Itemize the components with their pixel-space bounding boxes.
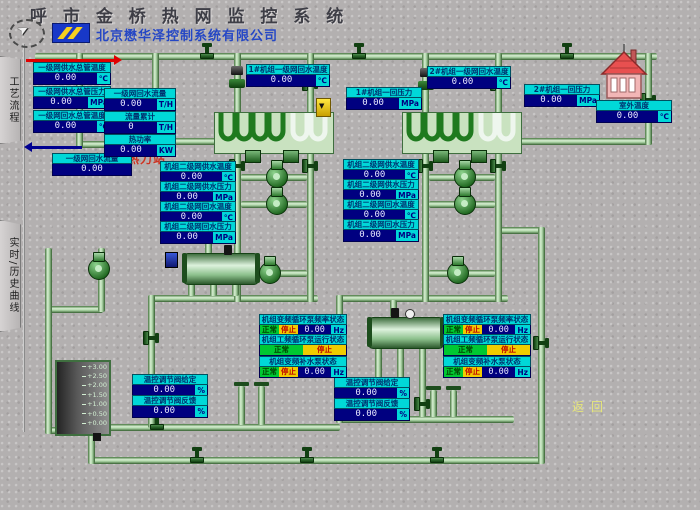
riser-stub-pipe bbox=[238, 386, 245, 425]
level-tick: +3.00 bbox=[57, 362, 109, 371]
return-flow-arrow-icon bbox=[32, 146, 82, 149]
gauge-value: 0.00 bbox=[347, 98, 399, 109]
status-unit: Hz bbox=[515, 367, 530, 377]
gauge-unit: MPa bbox=[399, 98, 421, 109]
status-label: 机组变频循环泵频率状态 bbox=[443, 314, 531, 325]
gauge-unit1-primary-return-temp: 1#机组一级网回水温度 0.00℃ bbox=[246, 64, 330, 87]
gauge-value: 0.00 bbox=[597, 111, 658, 122]
gauge-label: 机组二级网回水温度 bbox=[343, 199, 419, 210]
pipe-cap bbox=[254, 382, 269, 386]
water-collector-tank-unit1 bbox=[183, 253, 259, 285]
level-tick: +0.00 bbox=[57, 418, 109, 427]
pipe-segment bbox=[88, 457, 543, 464]
pipe-segment bbox=[518, 138, 652, 145]
gauge-value: 0.00 bbox=[335, 409, 397, 420]
riser-stub-pipe bbox=[258, 386, 265, 425]
hand-valve-icon bbox=[414, 397, 430, 411]
drain-valve-icon bbox=[93, 433, 101, 441]
circulation-pump-unit1-b[interactable] bbox=[266, 193, 288, 215]
house-icon bbox=[600, 44, 648, 106]
circulation-pump-unit1-a[interactable] bbox=[266, 166, 288, 188]
hand-valve-icon bbox=[490, 159, 506, 173]
gauge-value: 0.00 bbox=[105, 99, 157, 110]
pressure-gauge-icon bbox=[405, 309, 415, 319]
actuator-valve-icon[interactable] bbox=[316, 98, 331, 117]
gauge-unit: ℃ bbox=[497, 77, 510, 88]
gauge-label: 机组二级网回水压力 bbox=[160, 221, 236, 232]
cursor-arrow-icon: ➤ bbox=[15, 21, 32, 39]
gauge-unit1-valve-setpoint: 温控调节阀给定 0.00% bbox=[132, 374, 208, 397]
gauge-unit: % bbox=[195, 406, 207, 417]
circulation-pump-unit2-a[interactable] bbox=[454, 166, 476, 188]
tank-vent-icon bbox=[224, 245, 232, 255]
hand-valve-icon bbox=[302, 159, 318, 173]
makeup-water-pump-unit1[interactable] bbox=[259, 262, 281, 284]
status-label: 机组变频补水泵状态 bbox=[443, 356, 531, 367]
pipe-cap bbox=[426, 386, 441, 390]
gauge-label: 一级网供水总管压力 bbox=[33, 86, 111, 97]
gauge-label: 机组二级网回水温度 bbox=[160, 201, 236, 212]
tab-process-flow[interactable]: 工艺流程 bbox=[0, 56, 21, 144]
level-tick: +0.50 bbox=[57, 409, 109, 418]
flow-meter-block: 一级网回水流量 0.00T/H 流量累计 0T/H 热功率 0.00KW bbox=[104, 88, 176, 157]
heat-exchanger-unit1 bbox=[214, 112, 334, 154]
hx-junction-box bbox=[471, 150, 487, 163]
gauge-label: 机组二级网供水温度 bbox=[160, 161, 236, 172]
riser-stub-pipe bbox=[430, 390, 437, 417]
gauge-unit: MPa bbox=[396, 230, 418, 241]
gauge-outdoor-temp: 室外温度 0.00℃ bbox=[596, 100, 672, 123]
gauge-unit2-sec-return-pressure: 机组二级网回水压力 0.00MPa bbox=[343, 219, 419, 242]
gauge-unit: KW bbox=[157, 145, 175, 156]
gauge-unit: T/H bbox=[157, 122, 175, 133]
level-tick: +1.00 bbox=[57, 400, 109, 409]
gauge-label: 一级网供水总管温度 bbox=[33, 62, 111, 73]
status-label: 机组变频循环泵频率状态 bbox=[259, 314, 347, 325]
gauge-value: 0.00 bbox=[247, 75, 316, 86]
gauge-value: 0.00 bbox=[428, 77, 497, 88]
makeup-water-pump-unit2[interactable] bbox=[447, 262, 469, 284]
gauge-label: 流量累计 bbox=[104, 111, 176, 122]
gauge-unit: ℃ bbox=[97, 73, 110, 84]
pipe-segment bbox=[100, 424, 340, 431]
gauge-unit2-primary-return-temp: 2#机组一级网回水温度 0.00℃ bbox=[427, 66, 511, 89]
gauge-unit: % bbox=[397, 409, 409, 420]
hx-junction-box bbox=[245, 150, 261, 163]
gauge-value: 0.00 bbox=[133, 406, 195, 417]
gauge-value: 0.00 bbox=[525, 95, 577, 106]
makeup-water-pump-left[interactable] bbox=[88, 258, 110, 280]
hand-valve-icon bbox=[143, 331, 159, 345]
pipe-cap bbox=[234, 382, 249, 386]
level-tick: +2.50 bbox=[57, 371, 109, 380]
gauge-value: 0.00 bbox=[161, 232, 213, 243]
hx-junction-box bbox=[433, 150, 449, 163]
pump-motor-icon bbox=[165, 252, 178, 268]
heat-exchanger-unit2 bbox=[402, 112, 522, 154]
status-unit1-pf-circ-pump: 机组工频循环泵运行状态 正常 停止 bbox=[259, 334, 347, 356]
status-unit2-vfd-circ-pump: 机组变频循环泵频率状态 正常 停止 0.00 Hz bbox=[443, 314, 531, 336]
status-stop-badge: 停止 bbox=[279, 367, 298, 377]
gauge-label: 热功率 bbox=[104, 134, 176, 145]
gauge-label: 2#机组一回压力 bbox=[524, 84, 600, 95]
status-unit: Hz bbox=[331, 367, 346, 377]
hx-junction-box bbox=[283, 150, 299, 163]
gauge-label: 1#机组一回压力 bbox=[346, 87, 422, 98]
status-stop-badge: 停止 bbox=[463, 367, 482, 377]
circulation-pump-unit2-b[interactable] bbox=[454, 193, 476, 215]
company-name: 北京懋华泽控制系统有限公司 bbox=[96, 25, 278, 44]
clock-icon: ➤ bbox=[9, 19, 45, 48]
gauge-label: 温控调节阀给定 bbox=[334, 377, 410, 388]
tab-realtime-history-curves[interactable]: 实时/历史曲线 bbox=[0, 220, 21, 332]
gauge-unit2-primary-pressure: 2#机组一回压力 0.00MPa bbox=[524, 84, 600, 107]
level-tick: +1.50 bbox=[57, 390, 109, 399]
gauge-primary-supply-temp: 一级网供水总管温度 0.00℃ bbox=[33, 62, 111, 85]
gauge-label: 机组二级网供水温度 bbox=[343, 159, 419, 170]
tank-vent-icon bbox=[391, 308, 399, 318]
gauge-unit: ℃ bbox=[658, 111, 671, 122]
control-valve-unit1[interactable] bbox=[229, 66, 245, 90]
hand-valve-icon bbox=[200, 43, 214, 59]
hand-valve-icon bbox=[300, 447, 314, 463]
gauge-label: 1#机组一级网回水温度 bbox=[246, 64, 330, 75]
status-unit1-vfd-circ-pump: 机组变频循环泵频率状态 正常 停止 0.00 Hz bbox=[259, 314, 347, 336]
gauge-label: 一级网回水总管温度 bbox=[33, 110, 111, 121]
company-logo-icon bbox=[52, 23, 90, 43]
gauge-label: 机组二级网供水压力 bbox=[160, 181, 236, 192]
status-stop-badge: 停止 bbox=[487, 345, 530, 355]
pipe-segment bbox=[148, 295, 318, 302]
gauge-value: 0.00 bbox=[53, 164, 131, 175]
hand-valve-icon bbox=[352, 43, 366, 59]
status-normal-badge: 正常 bbox=[260, 345, 303, 355]
return-button[interactable]: 返回 bbox=[572, 398, 610, 415]
level-tick: +2.00 bbox=[57, 381, 109, 390]
scada-screen: 呼 市 金 桥 热 网 监 控 系 统 ➤ 北京懋华泽控制系统有限公司 工艺流程… bbox=[0, 0, 700, 525]
gauge-unit2-valve-feedback: 温控调节阀反馈 0.00% bbox=[334, 398, 410, 421]
gauge-unit: MPa bbox=[213, 232, 235, 243]
gauge-unit: ℃ bbox=[316, 75, 329, 86]
pipe-segment bbox=[45, 248, 52, 434]
gauge-label: 温控调节阀反馈 bbox=[334, 398, 410, 409]
status-label: 机组工频循环泵运行状态 bbox=[443, 334, 531, 345]
gauge-value: 0.00 bbox=[105, 145, 157, 156]
water-collector-tank-unit2 bbox=[368, 317, 444, 349]
status-normal-badge: 正常 bbox=[260, 367, 279, 377]
gauge-primary-supply-pressure: 一级网供水总管压力 0.00MPa bbox=[33, 86, 111, 109]
pipe-segment bbox=[45, 306, 103, 313]
status-value: 0.00 bbox=[482, 367, 515, 377]
gauge-unit1-primary-pressure: 1#机组一回压力 0.00MPa bbox=[346, 87, 422, 110]
gauge-label: 温控调节阀反馈 bbox=[132, 395, 208, 406]
coil-icon bbox=[215, 113, 333, 153]
sidebar-divider bbox=[23, 44, 24, 432]
status-normal-badge: 正常 bbox=[444, 345, 487, 355]
hand-valve-icon bbox=[560, 43, 574, 59]
gauge-unit2-valve-setpoint: 温控调节阀给定 0.00% bbox=[334, 377, 410, 400]
gauge-unit: T/H bbox=[157, 99, 175, 110]
status-label: 机组变频补水泵状态 bbox=[259, 356, 347, 367]
gauge-unit1-sec-return-pressure: 机组二级网回水压力 0.00MPa bbox=[160, 221, 236, 244]
bottom-margin bbox=[0, 510, 700, 525]
gauge-label: 一级网回水流量 bbox=[104, 88, 176, 99]
gauge-value: 0.00 bbox=[34, 73, 97, 84]
gauge-label: 2#机组一级网回水温度 bbox=[427, 66, 511, 77]
gauge-value: 0.00 bbox=[34, 121, 97, 132]
gauge-label: 机组二级网供水压力 bbox=[343, 179, 419, 190]
status-unit2-pf-circ-pump: 机组工频循环泵运行状态 正常 停止 bbox=[443, 334, 531, 356]
pipe-cap bbox=[446, 386, 461, 390]
riser-stub-pipe bbox=[450, 390, 457, 417]
status-normal-badge: 正常 bbox=[444, 367, 463, 377]
makeup-water-tank-level-gauge: +3.00 +2.50 +2.00 +1.50 +1.00 +0.50 +0.0… bbox=[55, 360, 111, 436]
gauge-label: 温控调节阀给定 bbox=[132, 374, 208, 385]
coil-icon bbox=[403, 113, 521, 153]
gauge-value: 0.00 bbox=[34, 97, 88, 108]
status-stop-badge: 停止 bbox=[303, 345, 346, 355]
gauge-label: 室外温度 bbox=[596, 100, 672, 111]
hand-valve-icon bbox=[430, 447, 444, 463]
gauge-label: 机组二级网回水压力 bbox=[343, 219, 419, 230]
gauge-value: 0.00 bbox=[344, 230, 396, 241]
gauge-primary-return-temp: 一级网回水总管温度 0.00℃ bbox=[33, 110, 111, 133]
gauge-value: 0 bbox=[105, 122, 157, 133]
status-unit2-vfd-makeup-pump: 机组变频补水泵状态 正常 停止 0.00 Hz bbox=[443, 356, 531, 378]
status-label: 机组工频循环泵运行状态 bbox=[259, 334, 347, 345]
hand-valve-icon bbox=[417, 159, 433, 173]
gauge-unit1-valve-feedback: 温控调节阀反馈 0.00% bbox=[132, 395, 208, 418]
hand-valve-icon bbox=[190, 447, 204, 463]
status-value: 0.00 bbox=[298, 367, 331, 377]
hand-valve-icon bbox=[533, 336, 549, 350]
status-unit1-vfd-makeup-pump: 机组变频补水泵状态 正常 停止 0.00 Hz bbox=[259, 356, 347, 378]
